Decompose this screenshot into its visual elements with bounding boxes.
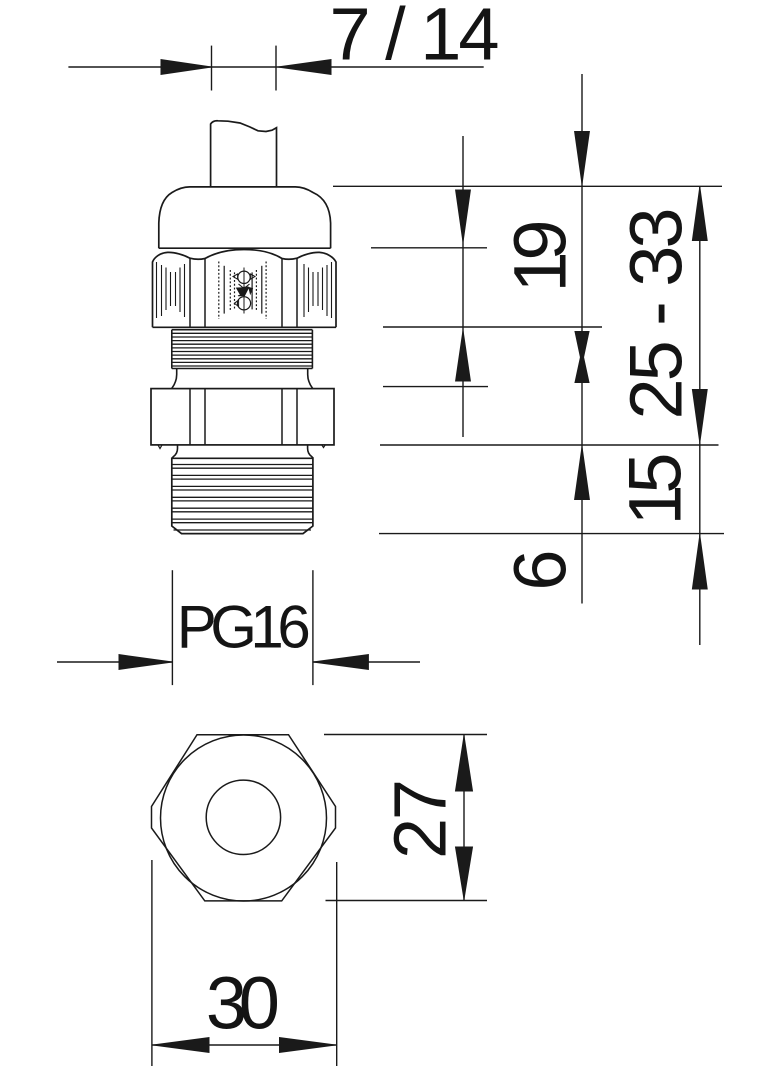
svg-text:25 - 33: 25 - 33 — [615, 208, 698, 420]
svg-text:30: 30 — [206, 962, 280, 1045]
svg-text:27: 27 — [379, 779, 462, 859]
svg-text:7 / 14: 7 / 14 — [330, 0, 500, 76]
svg-text:15: 15 — [614, 453, 697, 526]
svg-text:19: 19 — [499, 220, 582, 293]
svg-text:PG16: PG16 — [177, 594, 311, 661]
svg-text:6: 6 — [499, 549, 582, 590]
